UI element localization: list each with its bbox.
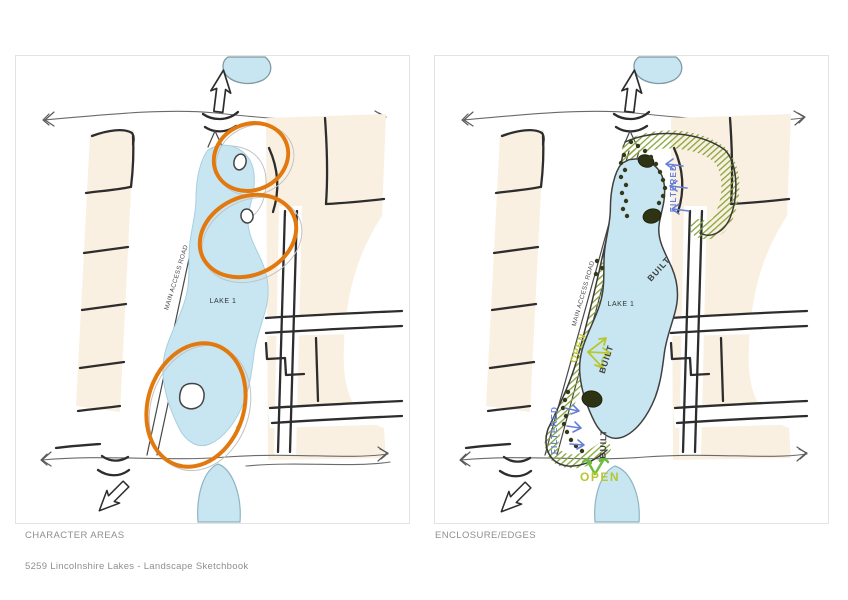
panel-character-areas: MAIN ACCESS ROAD <box>15 55 410 524</box>
filtered-label-bottom: FILTERED <box>550 406 559 454</box>
lake-label: LAKE 1 <box>608 301 635 308</box>
west-parcels <box>56 130 134 448</box>
filtered-label-top: FILTERED <box>669 164 678 212</box>
caption-character-areas: CHARACTER AREAS <box>25 530 124 541</box>
panel-enclosure-edges: MAIN ACCESS ROAD <box>434 55 829 524</box>
caption-enclosure-edges: ENCLOSURE/EDGES <box>435 530 536 541</box>
character-areas-sketch-map: MAIN ACCESS ROAD <box>16 56 409 523</box>
south-arrow <box>495 457 534 518</box>
sketchbook-footer: 5259 Lincolnshire Lakes - Landscape Sket… <box>25 561 248 572</box>
south-arrow <box>93 456 132 517</box>
enclosure-edges-sketch-map: MAIN ACCESS ROAD <box>435 56 828 523</box>
west-parcels <box>466 130 544 448</box>
east-parcels <box>669 114 809 460</box>
built-label-bottom: BUILT <box>597 429 608 459</box>
lake-label: LAKE 1 <box>210 298 237 305</box>
open-label-bottom: OPEN <box>580 470 620 484</box>
